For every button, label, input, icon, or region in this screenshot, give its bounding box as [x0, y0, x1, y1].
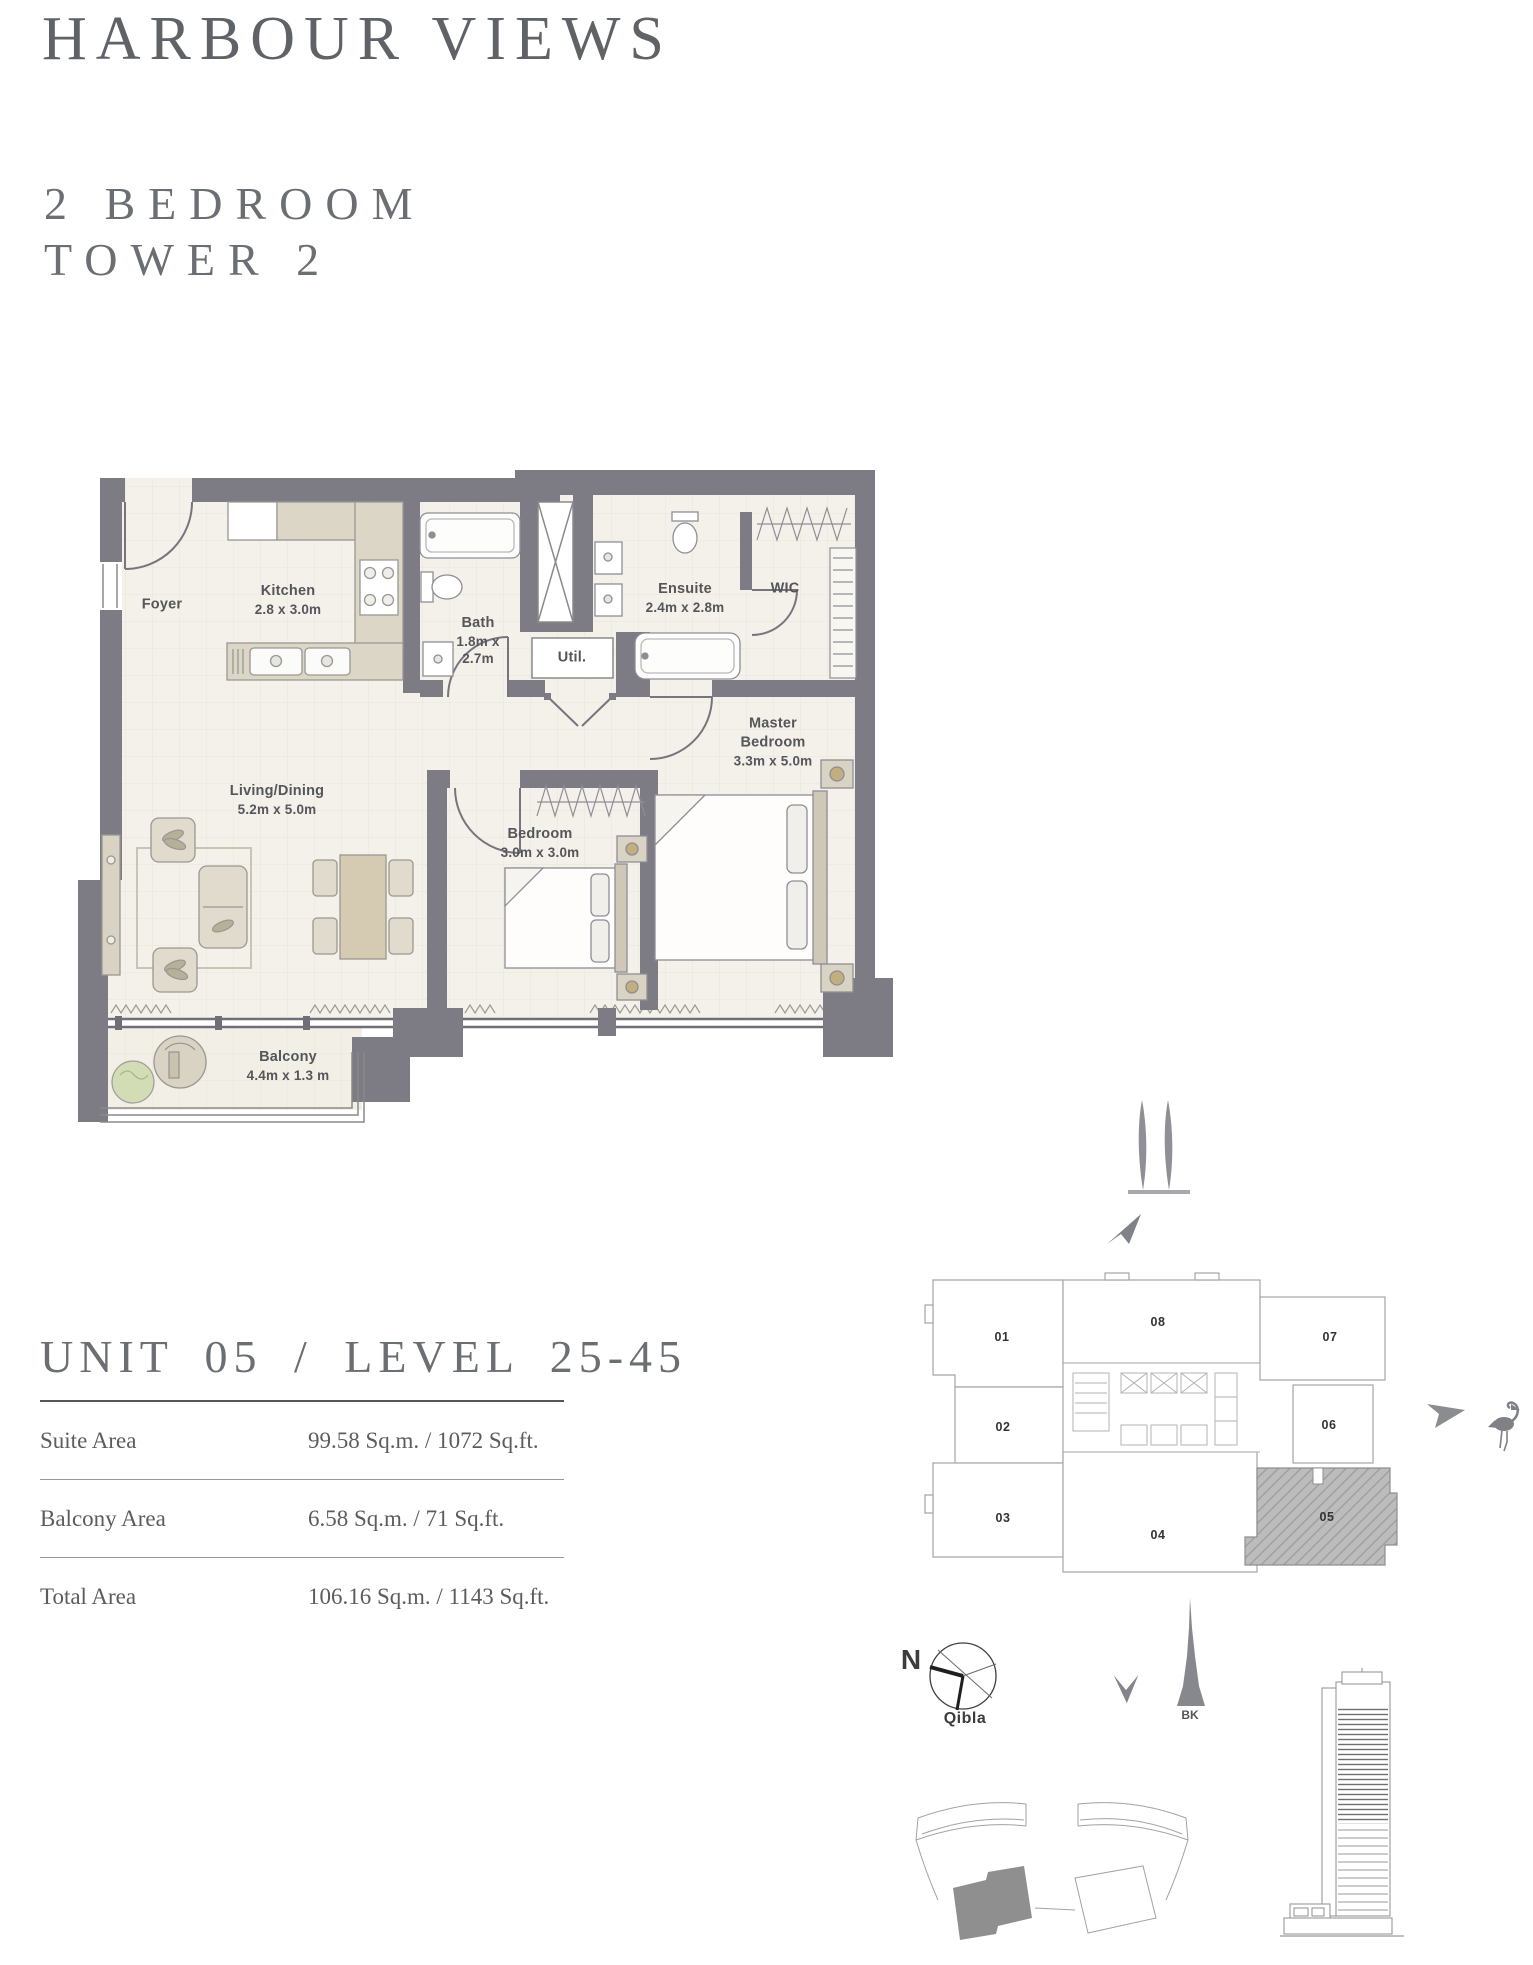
- direction-arrow-icon: [1105, 1210, 1145, 1246]
- burj-khalifa-icon: [1176, 1598, 1206, 1710]
- page-title: HARBOUR VIEWS: [42, 4, 673, 75]
- room-label-util: Util.: [542, 649, 602, 668]
- table-row: Total Area 106.16 Sq.m. / 1143 Sq.ft.: [40, 1557, 564, 1635]
- twin-towers-icon: [1128, 1098, 1198, 1200]
- floor-plan: Foyer Kitchen 2.8 x 3.0m Bath 1.8m x 2.7…: [45, 460, 905, 1170]
- master-bed: [655, 760, 853, 992]
- subtitle-bedroom-line: 2 BEDROOM: [44, 176, 426, 232]
- area-table: Suite Area 99.58 Sq.m. / 1072 Sq.ft. Bal…: [40, 1400, 564, 1635]
- key-plan-label-07: 07: [1323, 1330, 1338, 1344]
- stove-icon: [360, 560, 398, 615]
- room-label-living-dining: Living/Dining 5.2m x 5.0m: [217, 782, 337, 818]
- area-row-label: Suite Area: [40, 1428, 308, 1454]
- room-label-wic: WIC: [757, 580, 813, 599]
- key-plan: 01 02 03 04 05 06 07 08: [915, 1265, 1495, 1595]
- key-plan-label-04: 04: [1151, 1528, 1166, 1542]
- area-row-value: 6.58 Sq.m. / 71 Sq.ft.: [308, 1506, 564, 1532]
- area-row-value: 106.16 Sq.m. / 1143 Sq.ft.: [308, 1584, 564, 1610]
- key-plan-unit-03: [933, 1463, 1063, 1557]
- room-label-foyer: Foyer: [127, 596, 197, 615]
- area-row-value: 99.58 Sq.m. / 1072 Sq.ft.: [308, 1428, 564, 1454]
- direction-arrow-icon: [1425, 1396, 1469, 1432]
- area-row-label: Total Area: [40, 1584, 308, 1610]
- floor-plan-drawing: [45, 460, 905, 1170]
- key-plan-label-05: 05: [1320, 1510, 1335, 1524]
- toilet-icon: [432, 575, 462, 599]
- unit-heading: UNIT 05 / LEVEL 25-45: [40, 1330, 687, 1383]
- key-plan-label-03: 03: [996, 1511, 1011, 1525]
- bathtub-icon: [635, 633, 740, 679]
- key-plan-label-08: 08: [1151, 1315, 1166, 1329]
- key-plan-label-06: 06: [1322, 1418, 1337, 1432]
- room-label-bath: Bath 1.8m x 2.7m: [446, 614, 510, 668]
- plant-icon: [112, 1061, 154, 1103]
- room-label-balcony: Balcony 4.4m x 1.3 m: [233, 1048, 343, 1084]
- key-plan-label-02: 02: [996, 1420, 1011, 1434]
- room-label-ensuite: Ensuite 2.4m x 2.8m: [633, 580, 737, 616]
- site-plan-drawing: [898, 1788, 1218, 1965]
- room-label-bedroom: Bedroom 3.0m x 3.0m: [485, 825, 595, 861]
- brochure-page: HARBOUR VIEWS 2 BEDROOM TOWER 2: [0, 0, 1533, 1965]
- window-lines: [108, 1016, 853, 1030]
- foyer-side-window: [100, 562, 122, 610]
- burj-khalifa-label: BK: [1168, 1708, 1212, 1722]
- bird-icon: [1112, 1674, 1140, 1706]
- table-row: Balcony Area 6.58 Sq.m. / 71 Sq.ft.: [40, 1479, 564, 1557]
- key-plan-label-01: 01: [995, 1330, 1010, 1344]
- compass-qibla-label: Qibla: [922, 1710, 1008, 1728]
- subtitle-tower-line: TOWER 2: [44, 232, 426, 288]
- tower-elevation-drawing: [1278, 1668, 1408, 1943]
- table-row: Suite Area 99.58 Sq.m. / 1072 Sq.ft.: [40, 1400, 564, 1479]
- plan-subtitle: 2 BEDROOM TOWER 2: [44, 176, 426, 288]
- compass-north-label: N: [894, 1644, 928, 1676]
- key-plan-core: [1063, 1363, 1260, 1452]
- key-plan-unit-04: [1063, 1452, 1257, 1572]
- site-highlighted-building: [953, 1866, 1032, 1940]
- room-label-master-bedroom: Master Bedroom 3.3m x 5.0m: [723, 714, 823, 769]
- toilet-icon: [673, 523, 697, 553]
- area-row-label: Balcony Area: [40, 1506, 308, 1532]
- flamingo-icon: [1488, 1398, 1530, 1456]
- room-label-kitchen: Kitchen 2.8 x 3.0m: [233, 582, 343, 618]
- site-neighbor-building: [1075, 1866, 1156, 1933]
- dining-table: [340, 855, 386, 959]
